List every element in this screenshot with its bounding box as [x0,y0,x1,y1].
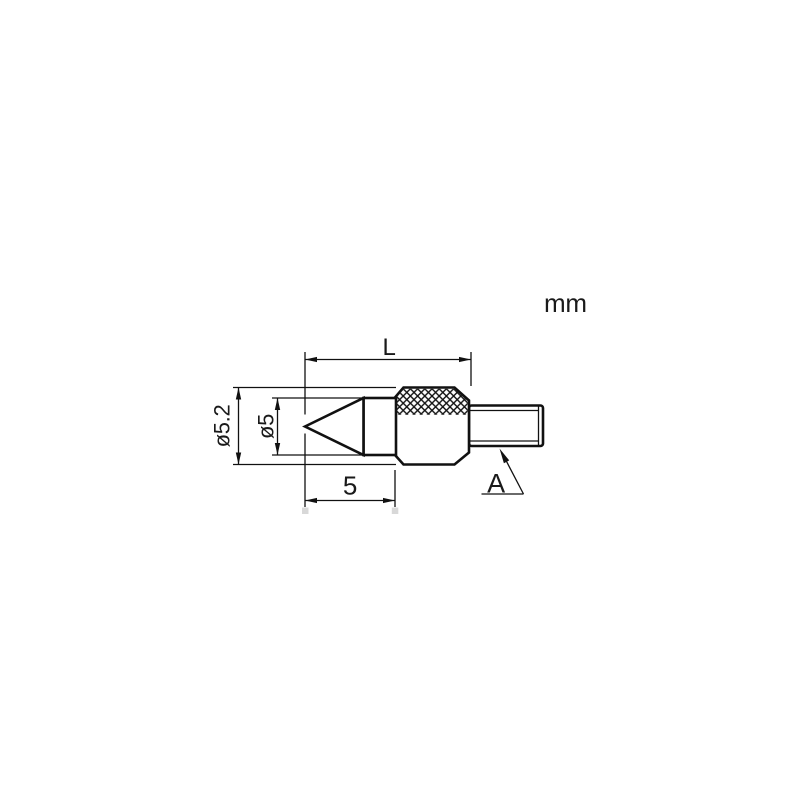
arrowhead-down-icon [236,453,241,465]
leader-arrowhead-icon [500,449,510,464]
point-base-diameter-label: ø5 [254,414,279,439]
arrowhead-left-icon [305,498,317,503]
knurl-crosshatch [396,389,467,415]
thread-reference-callout: A [482,449,524,499]
stem-body [469,406,543,447]
arrowhead-left-icon [305,357,317,362]
contact-point-drawing: ø5.2 ø5 L 5 [0,0,800,800]
tip-length-label: 5 [343,471,357,501]
arrowhead-right-icon [383,498,395,503]
technical-drawing-page: ø5.2 ø5 L 5 [0,0,800,800]
thread-ref-label: A [487,469,505,499]
dimension-tip-length: 5 [302,470,398,514]
arrowhead-down-icon [275,443,280,455]
threaded-stem [469,406,543,447]
line-end-mark-right [392,508,399,515]
arrowhead-up-icon [236,388,241,400]
overall-length-label: L [382,334,395,361]
leader-line [506,460,524,495]
line-end-mark-left [302,508,309,515]
unit-label: mm [544,288,587,318]
arrowhead-up-icon [275,398,280,410]
part-outline [305,388,543,465]
cone-point [305,398,364,455]
collar-cylinder [364,398,397,455]
outer-diameter-label: ø5.2 [210,405,235,448]
arrowhead-right-icon [459,357,471,362]
